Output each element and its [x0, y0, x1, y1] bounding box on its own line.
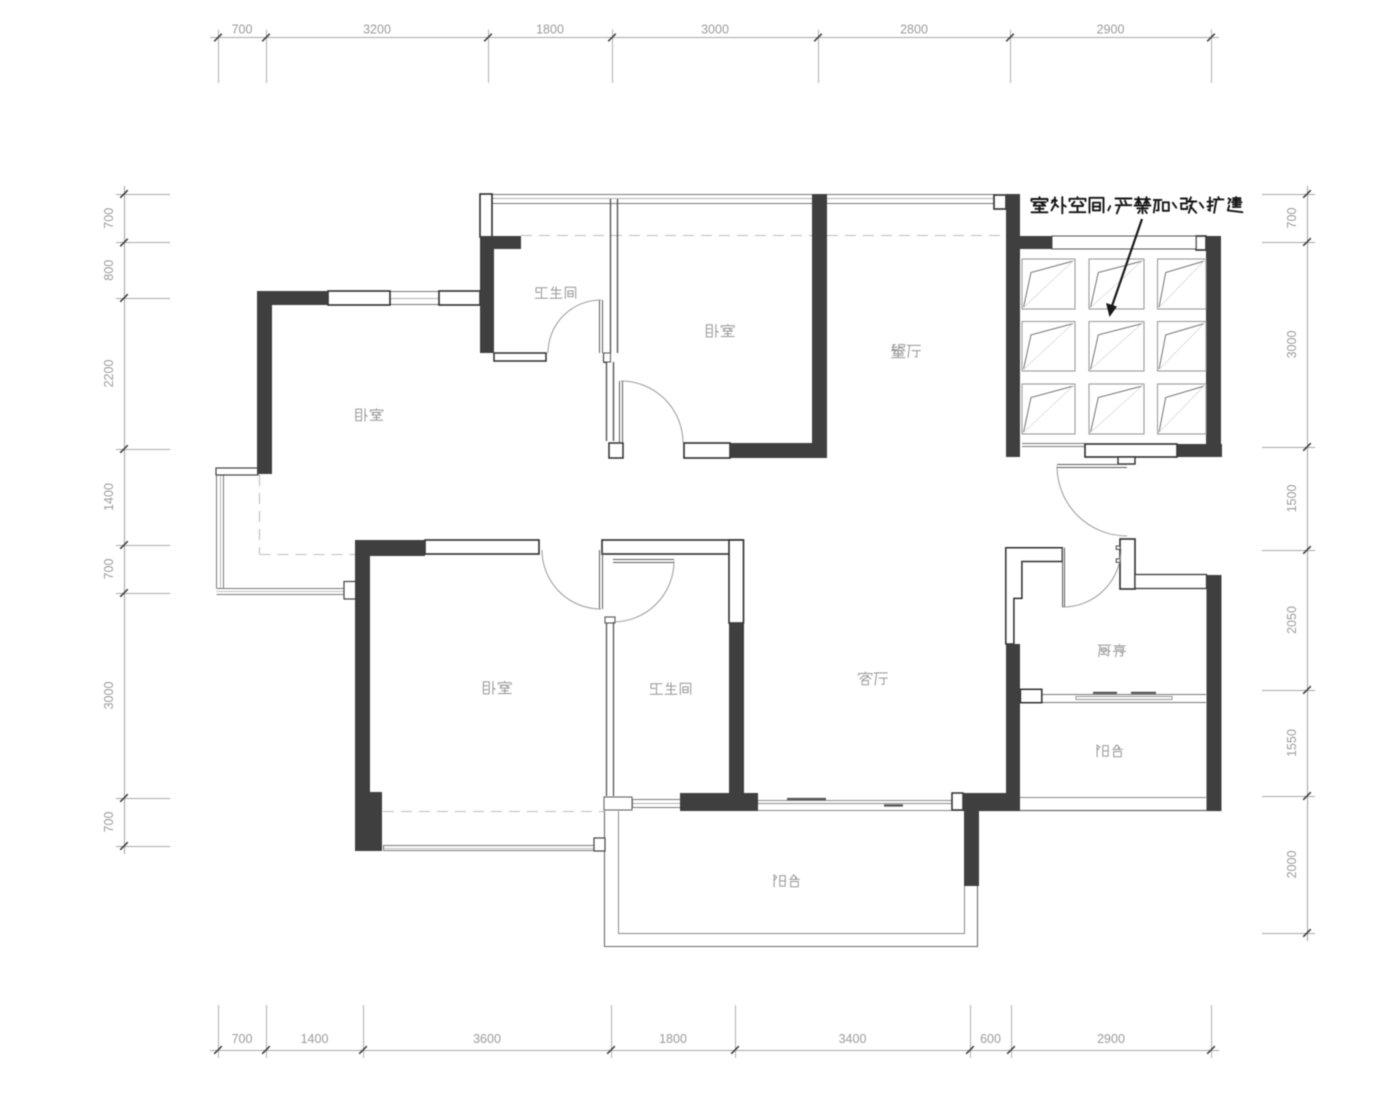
svg-text:2800: 2800 [900, 23, 928, 37]
svg-text:600: 600 [980, 1032, 1001, 1046]
svg-text:3600: 3600 [473, 1032, 501, 1046]
svg-text:3000: 3000 [701, 23, 729, 37]
svg-text:1800: 1800 [536, 23, 564, 37]
svg-text:700: 700 [1285, 208, 1299, 229]
svg-text:700: 700 [102, 559, 116, 580]
svg-text:3200: 3200 [363, 23, 391, 37]
svg-text:700: 700 [102, 812, 116, 833]
svg-text:800: 800 [102, 260, 116, 281]
svg-text:2000: 2000 [1285, 851, 1299, 879]
svg-text:2900: 2900 [1097, 23, 1125, 37]
svg-text:3000: 3000 [1285, 331, 1299, 359]
svg-text:1400: 1400 [102, 483, 116, 511]
svg-text:700: 700 [102, 208, 116, 229]
svg-text:700: 700 [232, 23, 253, 37]
svg-text:700: 700 [232, 1032, 253, 1046]
svg-text:1800: 1800 [659, 1032, 687, 1046]
svg-text:2900: 2900 [1097, 1032, 1125, 1046]
svg-text:1400: 1400 [301, 1032, 329, 1046]
svg-text:1500: 1500 [1285, 485, 1299, 513]
svg-text:3400: 3400 [839, 1032, 867, 1046]
svg-text:2200: 2200 [102, 360, 116, 388]
svg-text:2050: 2050 [1285, 606, 1299, 634]
svg-text:3000: 3000 [102, 682, 116, 710]
svg-text:1550: 1550 [1285, 729, 1299, 757]
